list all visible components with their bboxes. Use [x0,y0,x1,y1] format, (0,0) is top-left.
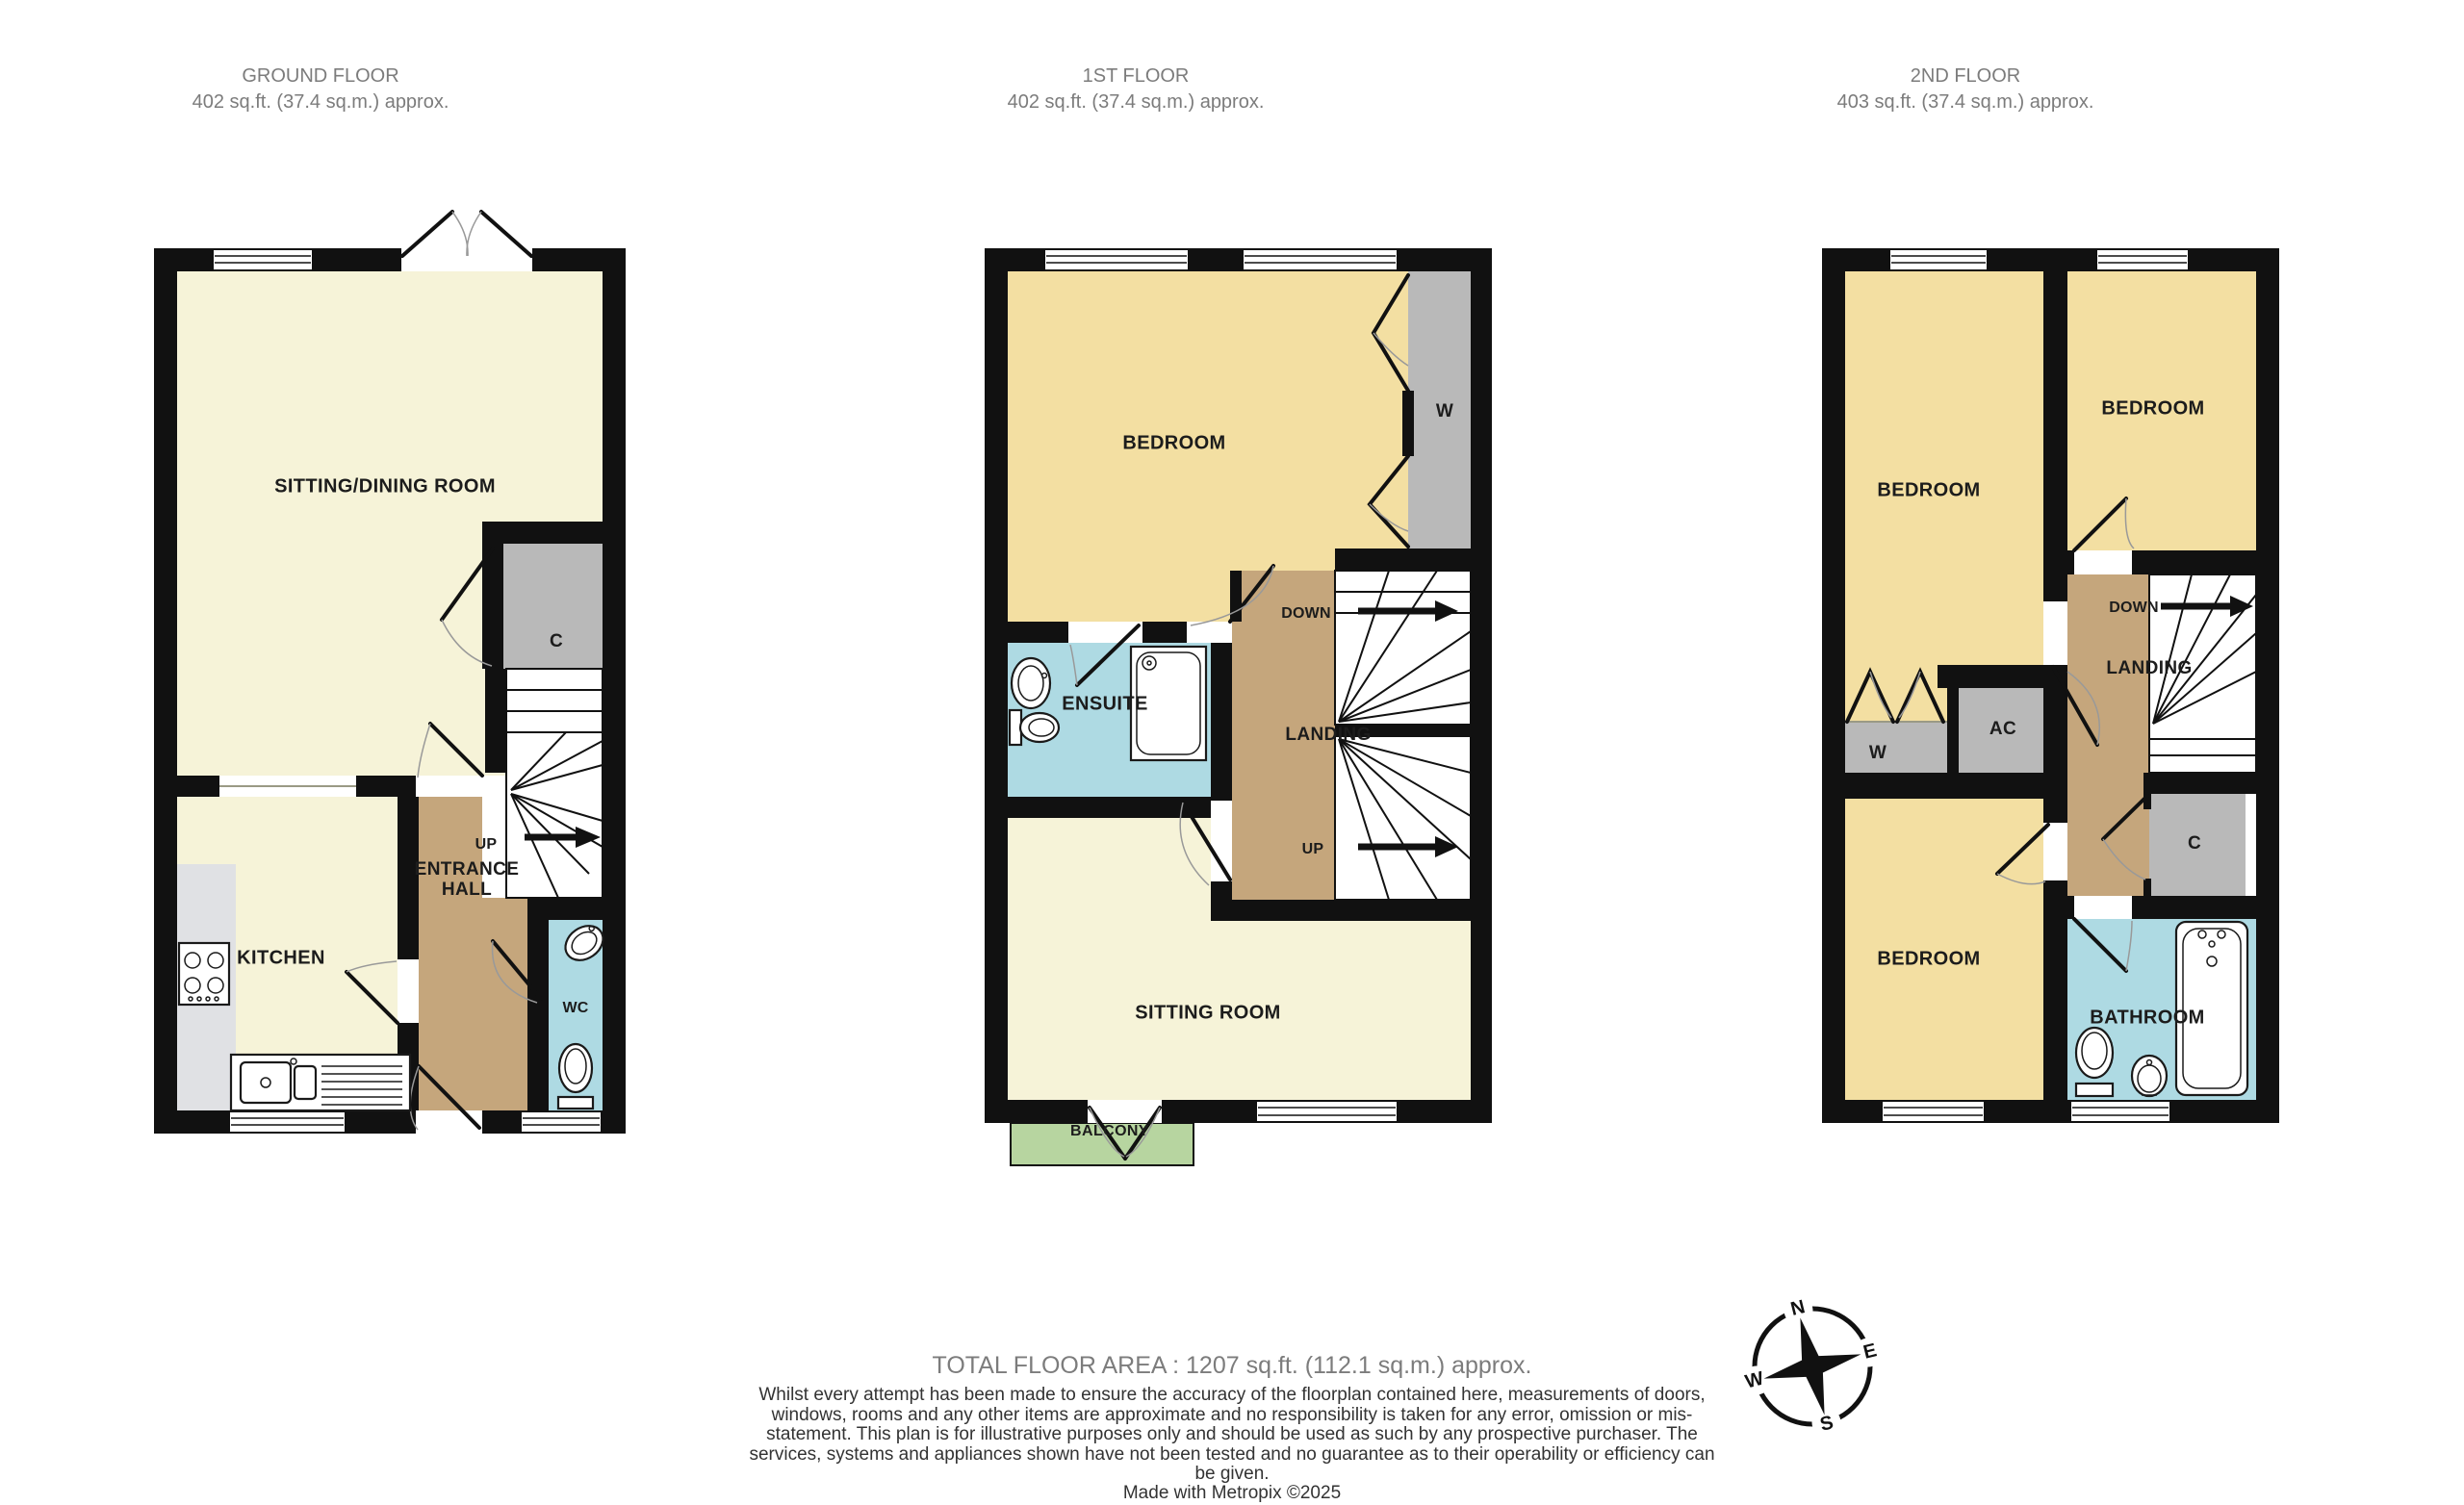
second-floor-area: 403 sq.ft. (37.4 sq.m.) approx. [1837,89,2094,115]
sf-label-down: DOWN [2109,599,2158,617]
metropix-credit: Made with Metropix ©2025 [1123,1483,1341,1504]
gf-label-wc: WC [562,1000,588,1017]
gf-stairs [506,669,603,898]
gf-french-doors [401,212,532,271]
ground-floor-title: GROUND FLOOR [192,64,449,89]
sf-toilet [2076,1028,2113,1096]
ff-label-landing: LANDING [1285,725,1371,746]
ff-stairs-down [1335,571,1471,725]
first-floor-title: 1ST FLOOR [1008,64,1265,89]
first-floor-area: 402 sq.ft. (37.4 sq.m.) approx. [1008,89,1265,115]
ff-label-wardrobe: W [1436,401,1453,422]
disclaimer-text: Whilst every attempt has been made to en… [741,1386,1723,1485]
ff-ensuite-basin [1012,658,1050,708]
floorplan-page: GROUND FLOOR 402 sq.ft. (37.4 sq.m.) app… [0,0,2464,1505]
ff-label-down: DOWN [1281,605,1330,623]
sf-label-bedroom-top-right: BEDROOM [2101,398,2204,421]
ground-floor-area: 402 sq.ft. (37.4 sq.m.) approx. [192,89,449,115]
ground-floor-plan [154,212,626,1134]
sf-label-ac: AC [1989,719,2016,740]
sf-label-bedroom-bottom: BEDROOM [1877,949,1980,971]
gf-label-closet-c: C [550,631,563,652]
ff-label-sitting-room: SITTING ROOM [1135,1003,1280,1025]
sf-label-landing: LANDING [2106,658,2192,679]
ff-label-bedroom: BEDROOM [1122,433,1225,455]
ff-ensuite-toilet [1010,710,1059,745]
first-floor-plan [985,248,1492,1165]
gf-sink [231,1055,410,1110]
second-floor-header: 2ND FLOOR 403 sq.ft. (37.4 sq.m.) approx… [1837,64,2094,115]
ff-label-up: UP [1302,841,1324,858]
gf-wc-toilet [558,1044,593,1109]
ground-floor-header: GROUND FLOOR 402 sq.ft. (37.4 sq.m.) app… [192,64,449,115]
sf-label-bedroom-top-left: BEDROOM [1877,480,1980,502]
gf-label-sitting-dining: SITTING/DINING ROOM [274,476,496,498]
gf-label-entrance-hall: ENTRANCE HALL [415,859,520,900]
ff-label-ensuite: ENSUITE [1062,694,1147,716]
sf-label-wardrobe: W [1869,743,1886,764]
gf-room-entrance-hall [419,797,482,1110]
ff-stairs-up [1335,736,1471,900]
sf-label-bathroom: BATHROOM [2090,1008,2204,1030]
second-floor-plan [1822,248,2279,1123]
total-floor-area: TOTAL FLOOR AREA : 1207 sq.ft. (112.1 sq… [933,1352,1532,1380]
sf-label-closet-c: C [2188,833,2201,855]
sf-basin [2132,1056,2167,1096]
gf-hob [179,943,229,1005]
floorplan-canvas [0,0,2464,1505]
gf-label-up: UP [475,836,498,854]
second-floor-title: 2ND FLOOR [1837,64,2094,89]
gf-label-kitchen: KITCHEN [237,948,325,970]
sf-wardrobe [1845,722,1947,777]
compass-rose [1725,1279,1900,1454]
ff-label-balcony: BALCONY [1070,1123,1149,1140]
first-floor-header: 1ST FLOOR 402 sq.ft. (37.4 sq.m.) approx… [1008,64,1265,115]
